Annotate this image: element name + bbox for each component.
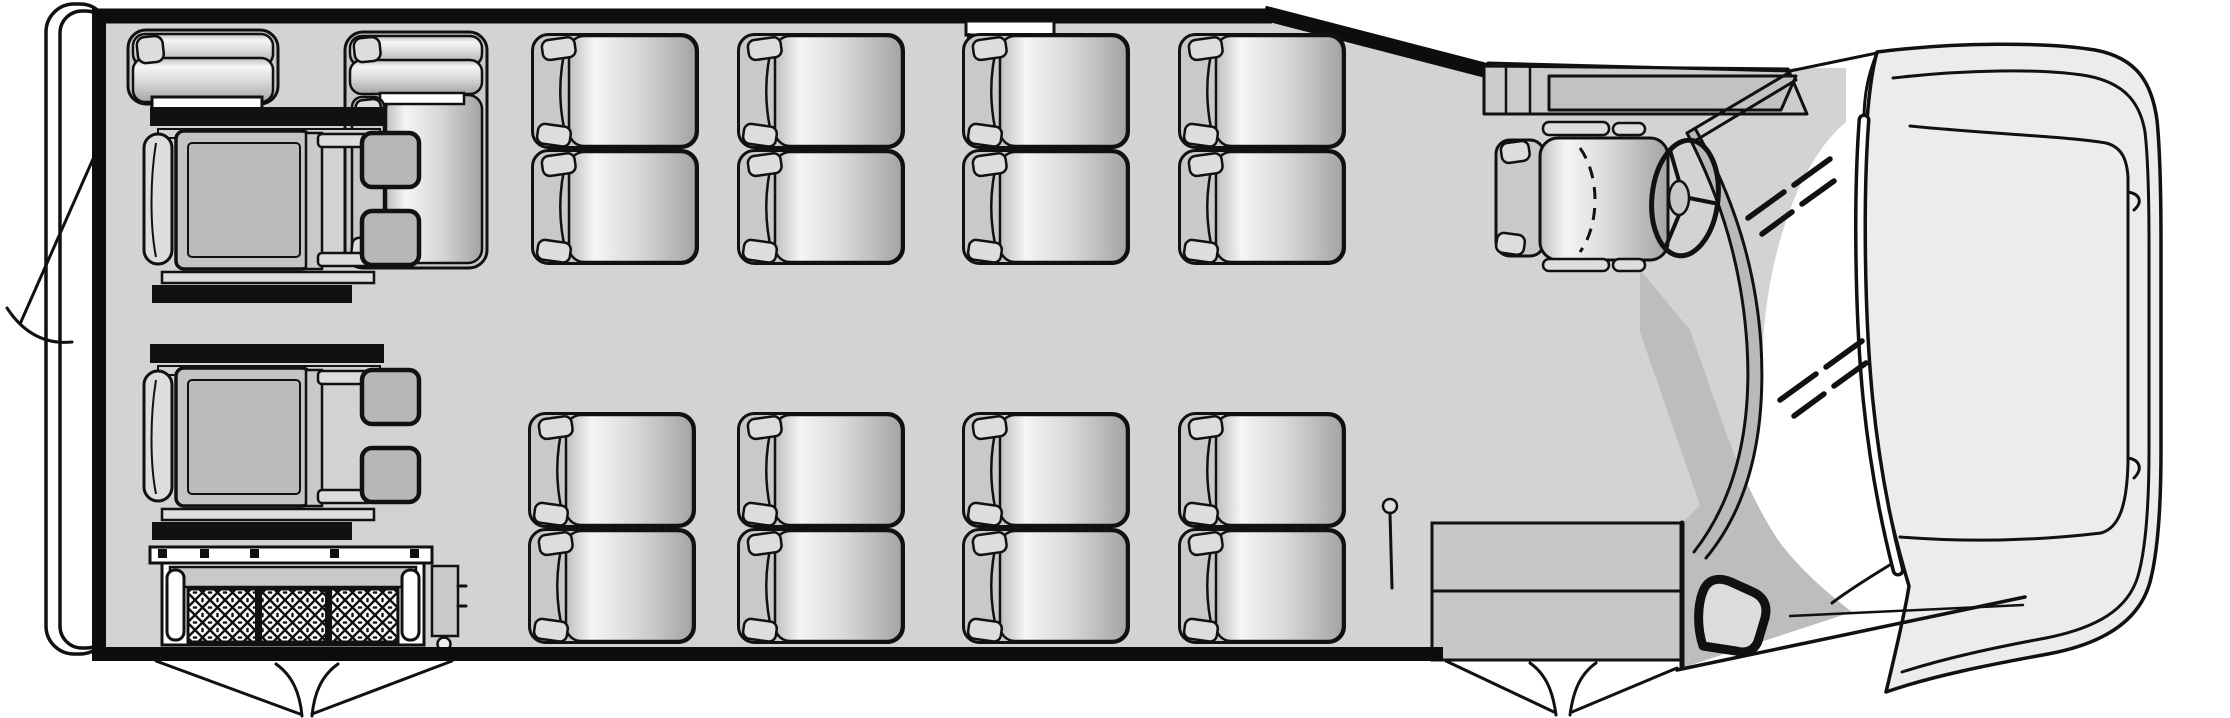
driver-seat bbox=[1495, 122, 1668, 271]
entry-steps bbox=[1432, 523, 1682, 668]
lift-door-swing bbox=[156, 661, 452, 716]
double-seat-block-curb-row-3 bbox=[964, 35, 1129, 264]
entry-door-swing bbox=[1446, 661, 1677, 715]
front-door-window bbox=[1699, 579, 1766, 652]
entry-step-2 bbox=[1432, 591, 1682, 660]
bus-floor-plan bbox=[0, 0, 2230, 718]
rear-door-swing bbox=[7, 150, 97, 342]
double-seat-block-road-row-1 bbox=[530, 414, 695, 643]
entry-step-1 bbox=[1432, 523, 1682, 591]
double-seat-block-curb-row-2 bbox=[739, 35, 904, 264]
double-seat-block-curb-row-4 bbox=[1180, 35, 1345, 264]
wheelchair-lift bbox=[150, 547, 466, 651]
double-seat-block-road-row-2 bbox=[739, 414, 904, 643]
glass-mark-windshield-lower bbox=[1780, 341, 1866, 416]
lift-mesh-platform bbox=[188, 589, 398, 642]
floor-plan-stage bbox=[0, 0, 2230, 718]
double-seat-block-curb-row-1 bbox=[533, 35, 698, 264]
double-seat-block-road-row-4 bbox=[1180, 414, 1345, 643]
rear-bench-seat-a bbox=[128, 30, 278, 115]
double-seat-block-road-row-3 bbox=[964, 414, 1129, 643]
front-hood bbox=[1864, 44, 2161, 692]
